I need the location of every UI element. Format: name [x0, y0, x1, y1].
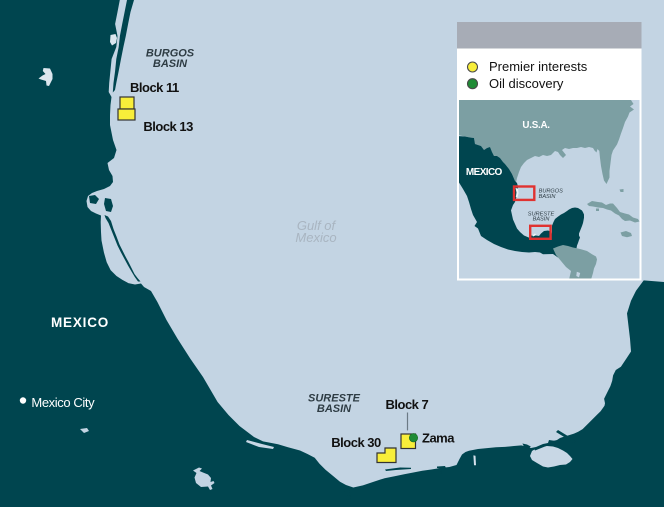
svg-text:BASIN: BASIN — [153, 58, 188, 70]
svg-text:U.S.A.: U.S.A. — [522, 120, 550, 131]
svg-text:Mexico: Mexico — [295, 230, 336, 245]
svg-text:Oil discovery: Oil discovery — [489, 76, 564, 91]
svg-text:MEXICO: MEXICO — [51, 315, 109, 330]
svg-text:BASIN: BASIN — [533, 217, 551, 223]
svg-text:Premier interests: Premier interests — [489, 59, 588, 74]
svg-text:Block 30: Block 30 — [331, 435, 381, 450]
svg-text:Zama: Zama — [422, 430, 455, 445]
svg-text:MEXICO: MEXICO — [466, 167, 503, 178]
svg-text:Block 13: Block 13 — [143, 119, 193, 134]
svg-text:BASIN: BASIN — [317, 403, 352, 415]
svg-text:Block 11: Block 11 — [130, 80, 179, 95]
svg-text:Block 7: Block 7 — [386, 397, 429, 412]
svg-text:Mexico City: Mexico City — [31, 395, 95, 410]
svg-text:BASIN: BASIN — [539, 194, 557, 200]
